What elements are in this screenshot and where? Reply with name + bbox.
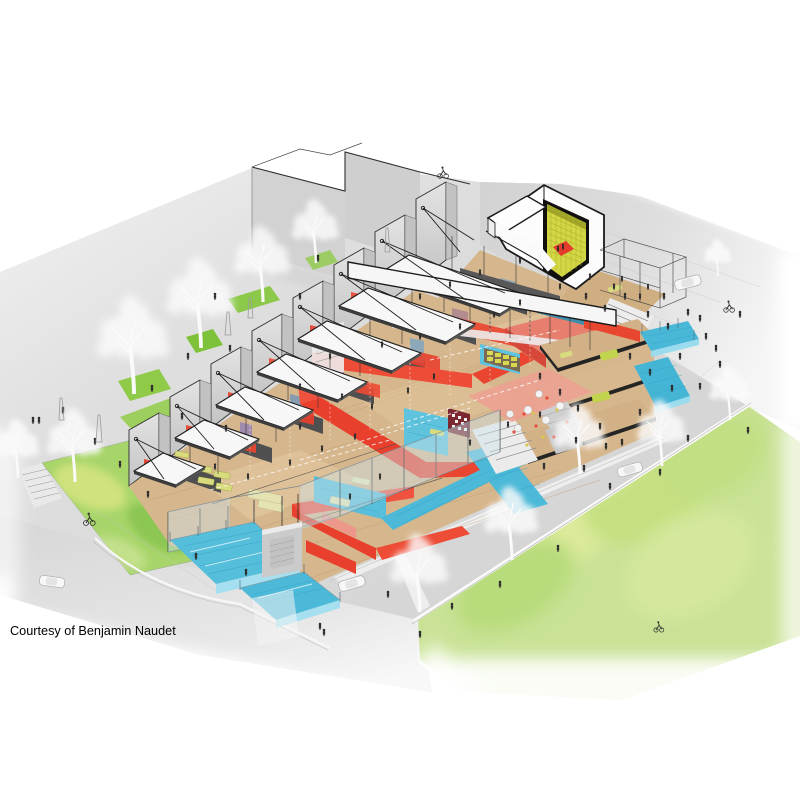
svg-text:Courtesy of Benjamin Naudet: Courtesy of Benjamin Naudet [10, 624, 176, 638]
